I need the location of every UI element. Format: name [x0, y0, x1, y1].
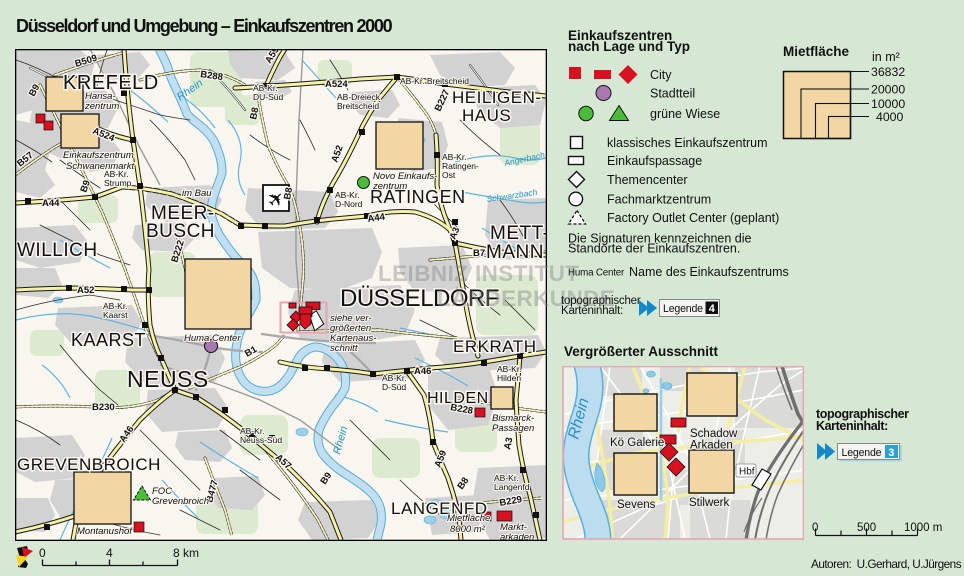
svg-text:Kö Galerie: Kö Galerie: [610, 437, 664, 449]
svg-text:Sevens: Sevens: [617, 499, 656, 511]
svg-text:Langenfd: Langenfd: [494, 482, 530, 492]
svg-text:im Bau: im Bau: [182, 188, 212, 199]
svg-text:NEUSS: NEUSS: [127, 366, 209, 392]
svg-text:arkaden: arkaden: [500, 532, 534, 541]
svg-text:B230: B230: [92, 402, 115, 413]
svg-text:HAUS: HAUS: [462, 106, 511, 125]
svg-text:zentrum: zentrum: [372, 181, 407, 192]
svg-text:Arkaden: Arkaden: [690, 440, 733, 452]
svg-text:500: 500: [857, 522, 876, 534]
svg-text:Kaarst: Kaarst: [103, 310, 128, 320]
svg-text:A46: A46: [414, 366, 431, 377]
svg-text:Mietfläche: Mietfläche: [447, 513, 490, 524]
svg-text:METT-: METT-: [490, 223, 547, 244]
svg-text:Hilden: Hilden: [497, 373, 521, 383]
svg-text:20000: 20000: [871, 83, 905, 97]
svg-text:0: 0: [39, 546, 46, 560]
svg-text:in m²: in m²: [872, 50, 900, 64]
svg-text:Huma Center: Huma Center: [184, 333, 241, 344]
svg-text:Grevenbroich: Grevenbroich: [152, 496, 209, 507]
svg-text:DU-Süd: DU-Süd: [253, 92, 284, 102]
svg-text:Stadtteil: Stadtteil: [650, 87, 695, 101]
svg-text:Schwanenmarkt: Schwanenmarkt: [66, 161, 134, 172]
svg-text:BUSCH: BUSCH: [146, 221, 215, 242]
svg-text:Strump: Strump: [104, 178, 132, 188]
svg-text:8000 m²: 8000 m²: [450, 524, 486, 535]
svg-text:Stilwerk: Stilwerk: [689, 497, 730, 509]
svg-text:4: 4: [709, 303, 716, 315]
svg-text:Name des Einkaufszentrums: Name des Einkaufszentrums: [629, 265, 789, 279]
svg-text:D-Süd: D-Süd: [382, 382, 406, 392]
svg-text:A44: A44: [42, 198, 60, 209]
svg-text:Einkaufszentrum: Einkaufszentrum: [63, 150, 134, 161]
svg-text:A52: A52: [77, 285, 94, 296]
svg-text:8 km: 8 km: [173, 546, 199, 560]
svg-text:grüne Wiese: grüne Wiese: [650, 107, 720, 121]
svg-text:0: 0: [812, 522, 818, 534]
svg-text:Einkaufspassage: Einkaufspassage: [607, 154, 702, 168]
svg-text:zentrum: zentrum: [84, 101, 119, 112]
svg-text:D-Nord: D-Nord: [335, 199, 363, 209]
svg-text:10000: 10000: [871, 97, 905, 111]
svg-text:Standorte der Einkaufszentren.: Standorte der Einkaufszentren.: [568, 242, 740, 256]
svg-text:GREVENBROICH: GREVENBROICH: [17, 455, 161, 474]
svg-text:A524: A524: [325, 79, 348, 90]
svg-text:WILLICH: WILLICH: [17, 240, 98, 261]
svg-text:Passagen: Passagen: [492, 423, 534, 434]
svg-text:B7: B7: [473, 248, 485, 259]
svg-text:klassisches Einkaufszentrum: klassisches Einkaufszentrum: [607, 136, 767, 150]
svg-text:Themencenter: Themencenter: [607, 173, 688, 187]
svg-text:4000: 4000: [876, 110, 904, 124]
svg-text:Montanushof: Montanushof: [77, 526, 133, 537]
svg-text:AB-Kr. Breitscheid: AB-Kr. Breitscheid: [400, 76, 469, 86]
svg-text:36832: 36832: [871, 65, 905, 79]
svg-text:Ost: Ost: [442, 170, 456, 180]
svg-text:MANN: MANN: [486, 242, 544, 263]
svg-text:3: 3: [888, 447, 894, 459]
svg-text:1000 m: 1000 m: [904, 522, 942, 534]
svg-text:Huma Center: Huma Center: [568, 268, 625, 279]
svg-text:KAARST: KAARST: [71, 330, 146, 350]
svg-text:Hbf: Hbf: [739, 467, 755, 478]
svg-text:Breitscheid: Breitscheid: [337, 101, 379, 111]
svg-text:Factory Outlet Center (geplant: Factory Outlet Center (geplant): [607, 211, 779, 225]
svg-text:Fachmarktzentrum: Fachmarktzentrum: [607, 193, 711, 207]
svg-text:4: 4: [106, 546, 113, 560]
svg-text:City: City: [650, 68, 672, 82]
svg-text:Neuss-Süd: Neuss-Süd: [240, 435, 282, 445]
svg-text:Legende: Legende: [842, 447, 882, 459]
svg-text:B8: B8: [282, 187, 295, 201]
svg-text:Legende: Legende: [663, 303, 703, 315]
svg-text:HEILIGEN-: HEILIGEN-: [452, 88, 542, 107]
svg-text:Schadow: Schadow: [690, 428, 738, 440]
svg-text:schnitt: schnitt: [330, 343, 358, 354]
svg-text:ERKRATH: ERKRATH: [453, 337, 536, 356]
